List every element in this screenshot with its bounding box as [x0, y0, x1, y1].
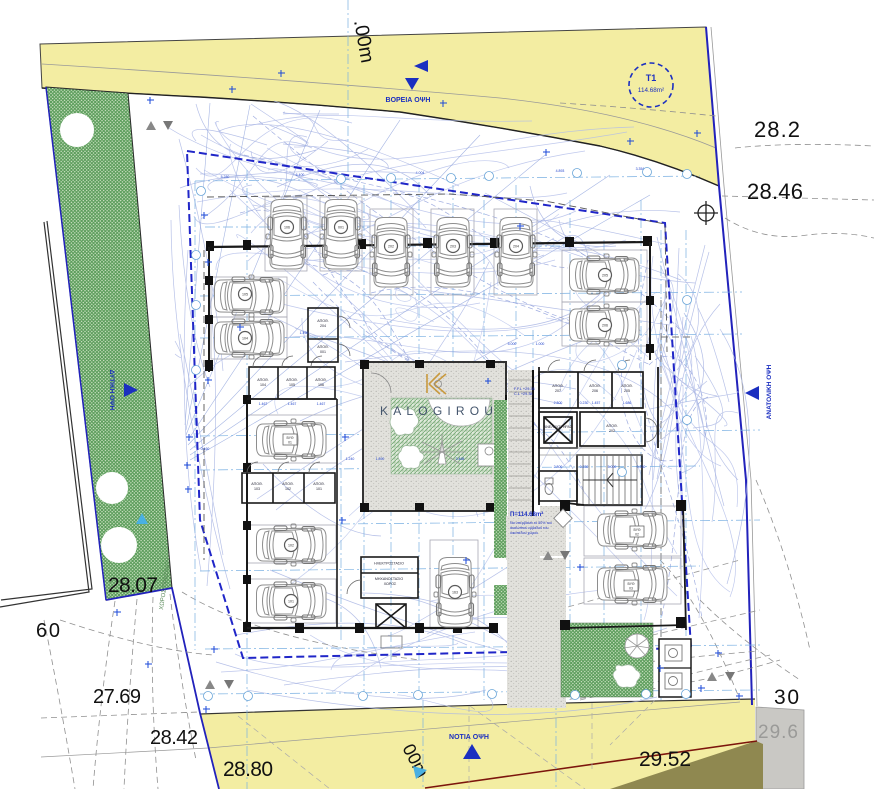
svg-text:ΔΥΤΙΚΗ ΟΨΗ: ΔΥΤΙΚΗ ΟΨΗ — [108, 370, 115, 411]
svg-text:101: 101 — [316, 487, 322, 491]
svg-text:1.467: 1.467 — [288, 402, 297, 406]
svg-text:102: 102 — [285, 487, 291, 491]
svg-text:ΑΠΟΘ.: ΑΠΟΘ. — [552, 384, 564, 388]
svg-text:5.280: 5.280 — [221, 175, 230, 179]
svg-text:ΑΠΟΘ.: ΑΠΟΘ. — [251, 482, 263, 486]
svg-text:ΗΛΕΚΤΡΟΣΤΑΣΙΟ: ΗΛΕΚΤΡΟΣΤΑΣΙΟ — [374, 562, 404, 566]
svg-text:ΑΠΟΘ.: ΑΠΟΘ. — [286, 378, 298, 382]
svg-text:104: 104 — [242, 337, 248, 341]
svg-text:206: 206 — [602, 324, 608, 328]
svg-text:F.F.L +29.38: F.F.L +29.38 — [514, 387, 535, 391]
svg-text:ΑΝΑΤΟΛΙΚΗ ΟΨΗ: ΑΝΑΤΟΛΙΚΗ ΟΨΗ — [766, 364, 773, 419]
svg-text:02: 02 — [635, 533, 639, 537]
svg-text:114.68m²: 114.68m² — [638, 87, 664, 94]
svg-text:ΒΟΡΕΙΑ ΟΨΗ: ΒΟΡΕΙΑ ΟΨΗ — [386, 97, 431, 104]
svg-text:ΝΟΤΙΑ ΟΨΗ: ΝΟΤΙΑ ΟΨΗ — [449, 734, 489, 741]
svg-text:ΑΠΟΘ.: ΑΠΟΘ. — [257, 378, 269, 382]
svg-text:101: 101 — [288, 600, 294, 604]
svg-text:ΜΗΧΑΝΟΣΤΑΣΙΟ: ΜΗΧΑΝΟΣΤΑΣΙΟ — [375, 577, 404, 581]
svg-text:28.46: 28.46 — [747, 179, 803, 204]
svg-text:207: 207 — [555, 389, 561, 393]
svg-text:T1: T1 — [646, 73, 657, 83]
svg-text:28.42: 28.42 — [150, 727, 198, 749]
svg-text:1.686: 1.686 — [623, 401, 632, 405]
svg-text:1.240: 1.240 — [346, 457, 355, 461]
svg-text:ΧΩΡΟΣ: ΧΩΡΟΣ — [384, 582, 397, 586]
svg-text:202: 202 — [609, 429, 615, 433]
svg-text:2.800: 2.800 — [554, 465, 563, 469]
svg-text:105: 105 — [289, 383, 295, 387]
svg-text:ΑΠΟΘ.: ΑΠΟΘ. — [589, 384, 601, 388]
svg-text:0.230: 0.230 — [580, 401, 589, 405]
svg-text:ΑΠΟΘ.: ΑΠΟΘ. — [317, 345, 329, 349]
svg-text:106: 106 — [318, 383, 324, 387]
svg-text:0.230: 0.230 — [637, 465, 646, 469]
svg-text:205: 205 — [602, 274, 608, 278]
svg-text:105: 105 — [242, 293, 248, 297]
svg-text:C.L +29.38: C.L +29.38 — [514, 392, 533, 396]
svg-text:ΒΥΘ: ΒΥΘ — [634, 528, 641, 532]
svg-text:28.2: 28.2 — [754, 117, 800, 142]
svg-text:103: 103 — [254, 487, 260, 491]
svg-text:28.80: 28.80 — [223, 758, 273, 781]
svg-text:1.467: 1.467 — [317, 402, 326, 406]
svg-text:001: 001 — [338, 226, 344, 230]
svg-text:Να υπερβαίνει το 50% του: Να υπερβαίνει το 50% του — [510, 521, 552, 525]
svg-text:ΑΠΟΘ.: ΑΠΟΘ. — [315, 378, 327, 382]
svg-text:27.69: 27.69 — [93, 686, 141, 708]
svg-text:2.800: 2.800 — [554, 401, 563, 405]
svg-text:ΑΠΟΘ.: ΑΠΟΘ. — [606, 424, 618, 428]
svg-text:4.004: 4.004 — [416, 171, 425, 175]
svg-text:Π=114.68m²: Π=114.68m² — [510, 511, 543, 518]
svg-text:104: 104 — [260, 383, 266, 387]
svg-text:3.465: 3.465 — [456, 457, 465, 461]
svg-text:01: 01 — [288, 441, 292, 445]
svg-text:03: 03 — [629, 587, 633, 591]
svg-text:1.467: 1.467 — [259, 402, 268, 406]
svg-text:106: 106 — [284, 226, 290, 230]
svg-text:28.07: 28.07 — [108, 574, 158, 597]
svg-text:204: 204 — [513, 245, 519, 249]
svg-text:29.6: 29.6 — [758, 722, 798, 743]
svg-text:1.000: 1.000 — [536, 342, 545, 346]
svg-text:203: 203 — [450, 245, 456, 249]
svg-text:ΑΝΕΛΚΥΣΤΗΡΑΣ: ΑΝΕΛΚΥΣΤΗΡΑΣ — [544, 425, 573, 429]
svg-text:205: 205 — [624, 389, 630, 393]
svg-text:ΑΠΟΘ.: ΑΠΟΘ. — [313, 482, 325, 486]
svg-text:102: 102 — [288, 544, 294, 548]
svg-text:KALOGIROU: KALOGIROU — [380, 404, 498, 418]
svg-text:ΒΥΘ: ΒΥΘ — [287, 436, 294, 440]
svg-text:ΑΠΟΘ.: ΑΠΟΘ. — [317, 319, 329, 323]
svg-text:ΑΠΟΘ.: ΑΠΟΘ. — [621, 384, 633, 388]
svg-text:1.457: 1.457 — [592, 401, 601, 405]
svg-text:0.230: 0.230 — [580, 465, 589, 469]
svg-text:60: 60 — [36, 620, 60, 642]
svg-text:30: 30 — [774, 686, 799, 709]
svg-text:1.890: 1.890 — [376, 457, 385, 461]
svg-text:202: 202 — [388, 245, 394, 249]
svg-text:6.400: 6.400 — [296, 173, 305, 177]
svg-text:4.893: 4.893 — [556, 169, 565, 173]
svg-text:5.000: 5.000 — [508, 342, 517, 346]
svg-text:1.490: 1.490 — [300, 331, 309, 335]
svg-text:29.52: 29.52 — [639, 748, 691, 771]
svg-text:5.000: 5.000 — [608, 465, 617, 469]
svg-text:204: 204 — [320, 324, 326, 328]
svg-text:001: 001 — [320, 350, 326, 354]
svg-text:0.460: 0.460 — [201, 447, 210, 451]
svg-text:οικοπέδου χώρου: οικοπέδου χώρου — [510, 531, 538, 535]
svg-text:ΒΥΘ: ΒΥΘ — [628, 582, 635, 586]
svg-text:ΑΠΟΘ.: ΑΠΟΘ. — [282, 482, 294, 486]
svg-text:ακαλύπτου εμβαδού του: ακαλύπτου εμβαδού του — [510, 526, 549, 530]
svg-text:163: 163 — [452, 591, 458, 595]
svg-text:206: 206 — [592, 389, 598, 393]
